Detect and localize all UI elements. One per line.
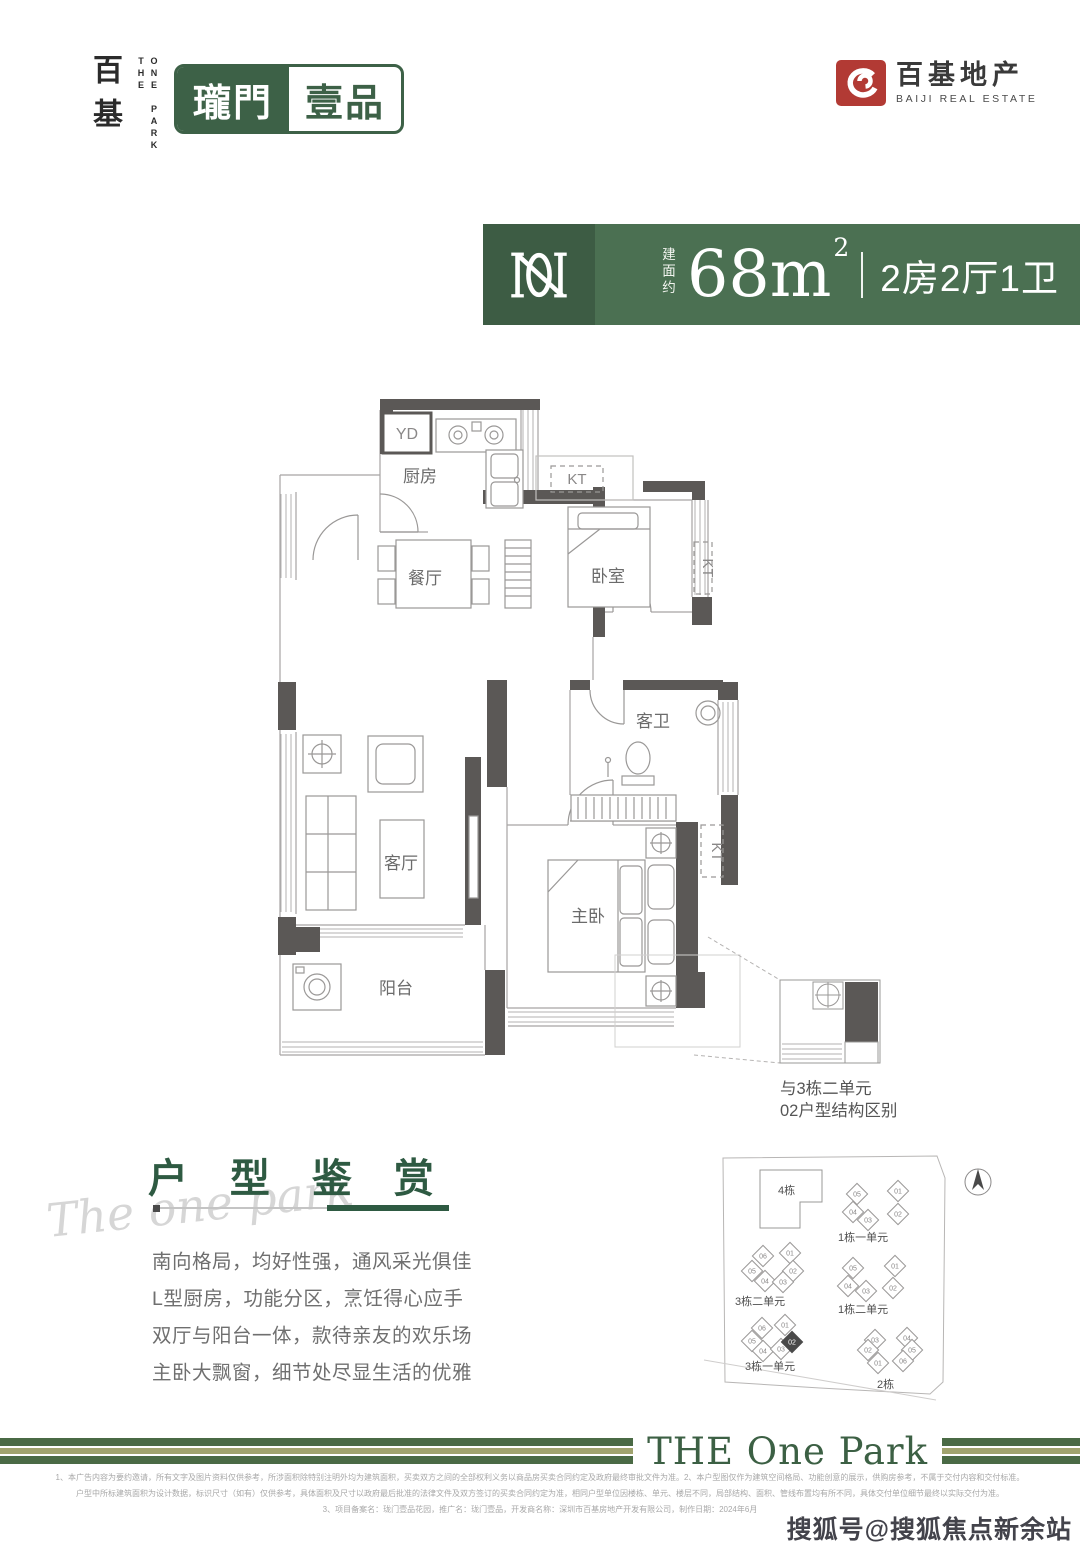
disclaimer-line: 户型中所标建筑面积为设计数据，标识尺寸（如有）仅供参考，具体面积及尺寸以政府最后… <box>0 1486 1080 1502</box>
siteplan-unit-number: 02 <box>864 1348 872 1355</box>
rule-green-bar <box>327 1205 449 1211</box>
developer-name-cn: 百基地产 <box>896 60 1037 90</box>
nightstand <box>648 920 674 964</box>
siteplan-unit-number: 02 <box>788 1340 796 1347</box>
vanity <box>571 795 676 821</box>
compass <box>965 1169 991 1195</box>
room-label-dining: 餐厅 <box>408 569 442 588</box>
room-label-master: 主卧 <box>571 907 605 926</box>
footer-band: THE One Park <box>0 1438 1080 1464</box>
siteplan-unit-number: 04 <box>759 1349 767 1356</box>
inset-note-line1: 与3栋二单元 <box>780 1079 872 1098</box>
brand-name-left: 瓏門 <box>177 67 289 131</box>
kt-label: KT <box>567 471 586 488</box>
nightstand <box>648 865 674 909</box>
siteplan-unit-number: 01 <box>894 1189 902 1196</box>
logo-en-col2: ONE PARK <box>149 56 159 152</box>
unit-banner: 建面约 68m 2 2房2厅1卫 <box>483 224 1080 325</box>
chair <box>378 579 395 604</box>
siteplan-cluster-4: 0304020501062栋 <box>857 1327 922 1391</box>
siteplan-unit-number: 02 <box>894 1212 902 1219</box>
brand-name-right: 壹品 <box>289 67 401 131</box>
selling-point-line: 双厅与阳台一体，款待亲友的欢乐场 <box>152 1318 512 1355</box>
siteplan-cluster-0: 05010403021栋一单元 <box>838 1180 909 1244</box>
selling-point-line: 主卧大飘窗，细节处尽显生活的优雅 <box>152 1355 512 1392</box>
siteplan-cluster-label: 3栋一单元 <box>745 1359 795 1373</box>
room-label-bedroom: 卧室 <box>591 567 625 586</box>
siteplan-unit-number: 03 <box>779 1280 787 1287</box>
flyer-page: 百基 THE ONE PARK 瓏門 壹品 百基地产 BAIJI REAL ES… <box>0 0 1080 1555</box>
siteplan-cluster-3: 0601050403023栋一单元 <box>741 1314 802 1373</box>
inset-note-line2: 02户型结构区别 <box>780 1101 897 1120</box>
washing-machine <box>293 964 341 1010</box>
toilet <box>626 742 650 774</box>
siteplan-unit-number: 05 <box>853 1192 861 1199</box>
siteplan-unit-number: 06 <box>899 1359 907 1366</box>
siteplan-unit-number: 06 <box>759 1254 767 1261</box>
compass-needle-icon <box>972 1169 984 1190</box>
room-label-balcony: 阳台 <box>379 979 413 998</box>
brand-logo-box: 瓏門 壹品 <box>174 64 404 134</box>
stove-counter <box>436 419 516 452</box>
kt-label: KT <box>708 842 725 861</box>
area-superscript: 2 <box>833 233 849 262</box>
siteplan-block4 <box>760 1170 822 1228</box>
watermark-text: 搜狐号@搜狐焦点新余站 <box>787 1510 1072 1546</box>
siteplan-unit-number: 03 <box>862 1289 870 1296</box>
logo-vertical-cn: 百基 <box>92 54 126 142</box>
siteplan-unit-number: 01 <box>891 1264 899 1271</box>
band-text: THE One Park <box>633 1430 942 1473</box>
developer-logo: 百基地产 BAIJI REAL ESTATE <box>836 60 1037 106</box>
siteplan-unit-number: 05 <box>849 1266 857 1273</box>
logo-vertical-en: THE ONE PARK <box>136 56 159 152</box>
monogram-badge <box>483 224 595 325</box>
siteplan-unit-number: 01 <box>874 1361 882 1368</box>
room-layout-label: 2房2厅1卫 <box>880 248 1059 302</box>
band-stripe-right <box>942 1438 1080 1464</box>
siteplan-unit-number: 04 <box>844 1284 852 1291</box>
siteplan-cluster-label: 3栋二单元 <box>735 1294 785 1308</box>
title-rule <box>153 1204 449 1212</box>
siteplan-cluster-label: 2栋 <box>877 1377 894 1391</box>
selling-points: 南向格局，均好性强，通风采光俱佳 L型厨房，功能分区，烹饪得心应手 双厅与阳台一… <box>152 1244 512 1392</box>
siteplan-unit-number: 05 <box>748 1269 756 1276</box>
floorplan-svg: YD 厨房 KT 餐厅 卧室 KT 客卫 客厅 主卧 KT 阳台 与3栋二单元 … <box>268 392 908 1122</box>
tv <box>469 816 478 898</box>
sofa <box>306 796 356 910</box>
selling-point-line: L型厨房，功能分区，烹饪得心应手 <box>152 1281 512 1318</box>
siteplan-cluster-1: 05010403021栋二单元 <box>837 1255 905 1316</box>
banner-divider <box>861 252 863 298</box>
siteplan-unit-number: 02 <box>889 1286 897 1293</box>
area-prefix-label: 建面约 <box>657 247 677 303</box>
siteplan-svg: 4栋 05010403021栋一单元05010403021栋二单元0601050… <box>700 1128 1040 1428</box>
siteplan-cluster-2: 0601050204033栋二单元 <box>735 1242 804 1308</box>
selling-point-line: 南向格局，均好性强，通风采光俱佳 <box>152 1244 512 1281</box>
chair <box>378 546 395 571</box>
developer-name-en: BAIJI REAL ESTATE <box>896 93 1037 105</box>
logo-en-col1: THE <box>136 56 146 152</box>
room-label-guest-bath: 客卫 <box>636 712 670 731</box>
siteplan-unit-number: 04 <box>761 1279 769 1286</box>
siteplan-unit-number: 05 <box>748 1339 756 1346</box>
monogram-no-icon <box>506 239 572 311</box>
siteplan-unit-number: 02 <box>789 1269 797 1276</box>
room-label-living: 客厅 <box>384 854 418 873</box>
chair <box>472 579 489 604</box>
chair <box>472 546 489 571</box>
siteplan-block4-label: 4栋 <box>778 1183 795 1197</box>
siteplan-cluster-label: 1栋二单元 <box>838 1302 888 1316</box>
siteplan-unit-number: 01 <box>781 1323 789 1330</box>
rule-thin-line <box>160 1207 327 1209</box>
section-title: 户 型 鉴 赏 <box>148 1146 448 1204</box>
room-label-yd: YD <box>396 426 418 443</box>
band-stripe-left <box>0 1438 633 1464</box>
siteplan-unit-number: 05 <box>908 1348 916 1355</box>
disclaimer-line: 1、本广告内容为要约邀请，所有文字及图片资料仅供参考，所涉面积除特别注明外均为建… <box>0 1470 1080 1486</box>
siteplan-unit-number: 01 <box>786 1251 794 1258</box>
developer-spiral-icon <box>836 60 886 106</box>
siteplan-unit-number: 06 <box>758 1326 766 1333</box>
siteplan-cluster-label: 1栋一单元 <box>838 1230 888 1244</box>
siteplan-unit-number: 03 <box>864 1218 872 1225</box>
kt-label: KT <box>699 558 716 577</box>
room-label-kitchen: 厨房 <box>403 467 437 486</box>
area-value: 68m <box>687 242 831 307</box>
wardrobe <box>505 540 531 608</box>
rule-square <box>153 1205 160 1212</box>
siteplan-unit-number: 04 <box>849 1210 857 1217</box>
round-basin <box>696 701 720 725</box>
siteplan-unit-number: 03 <box>777 1347 785 1354</box>
